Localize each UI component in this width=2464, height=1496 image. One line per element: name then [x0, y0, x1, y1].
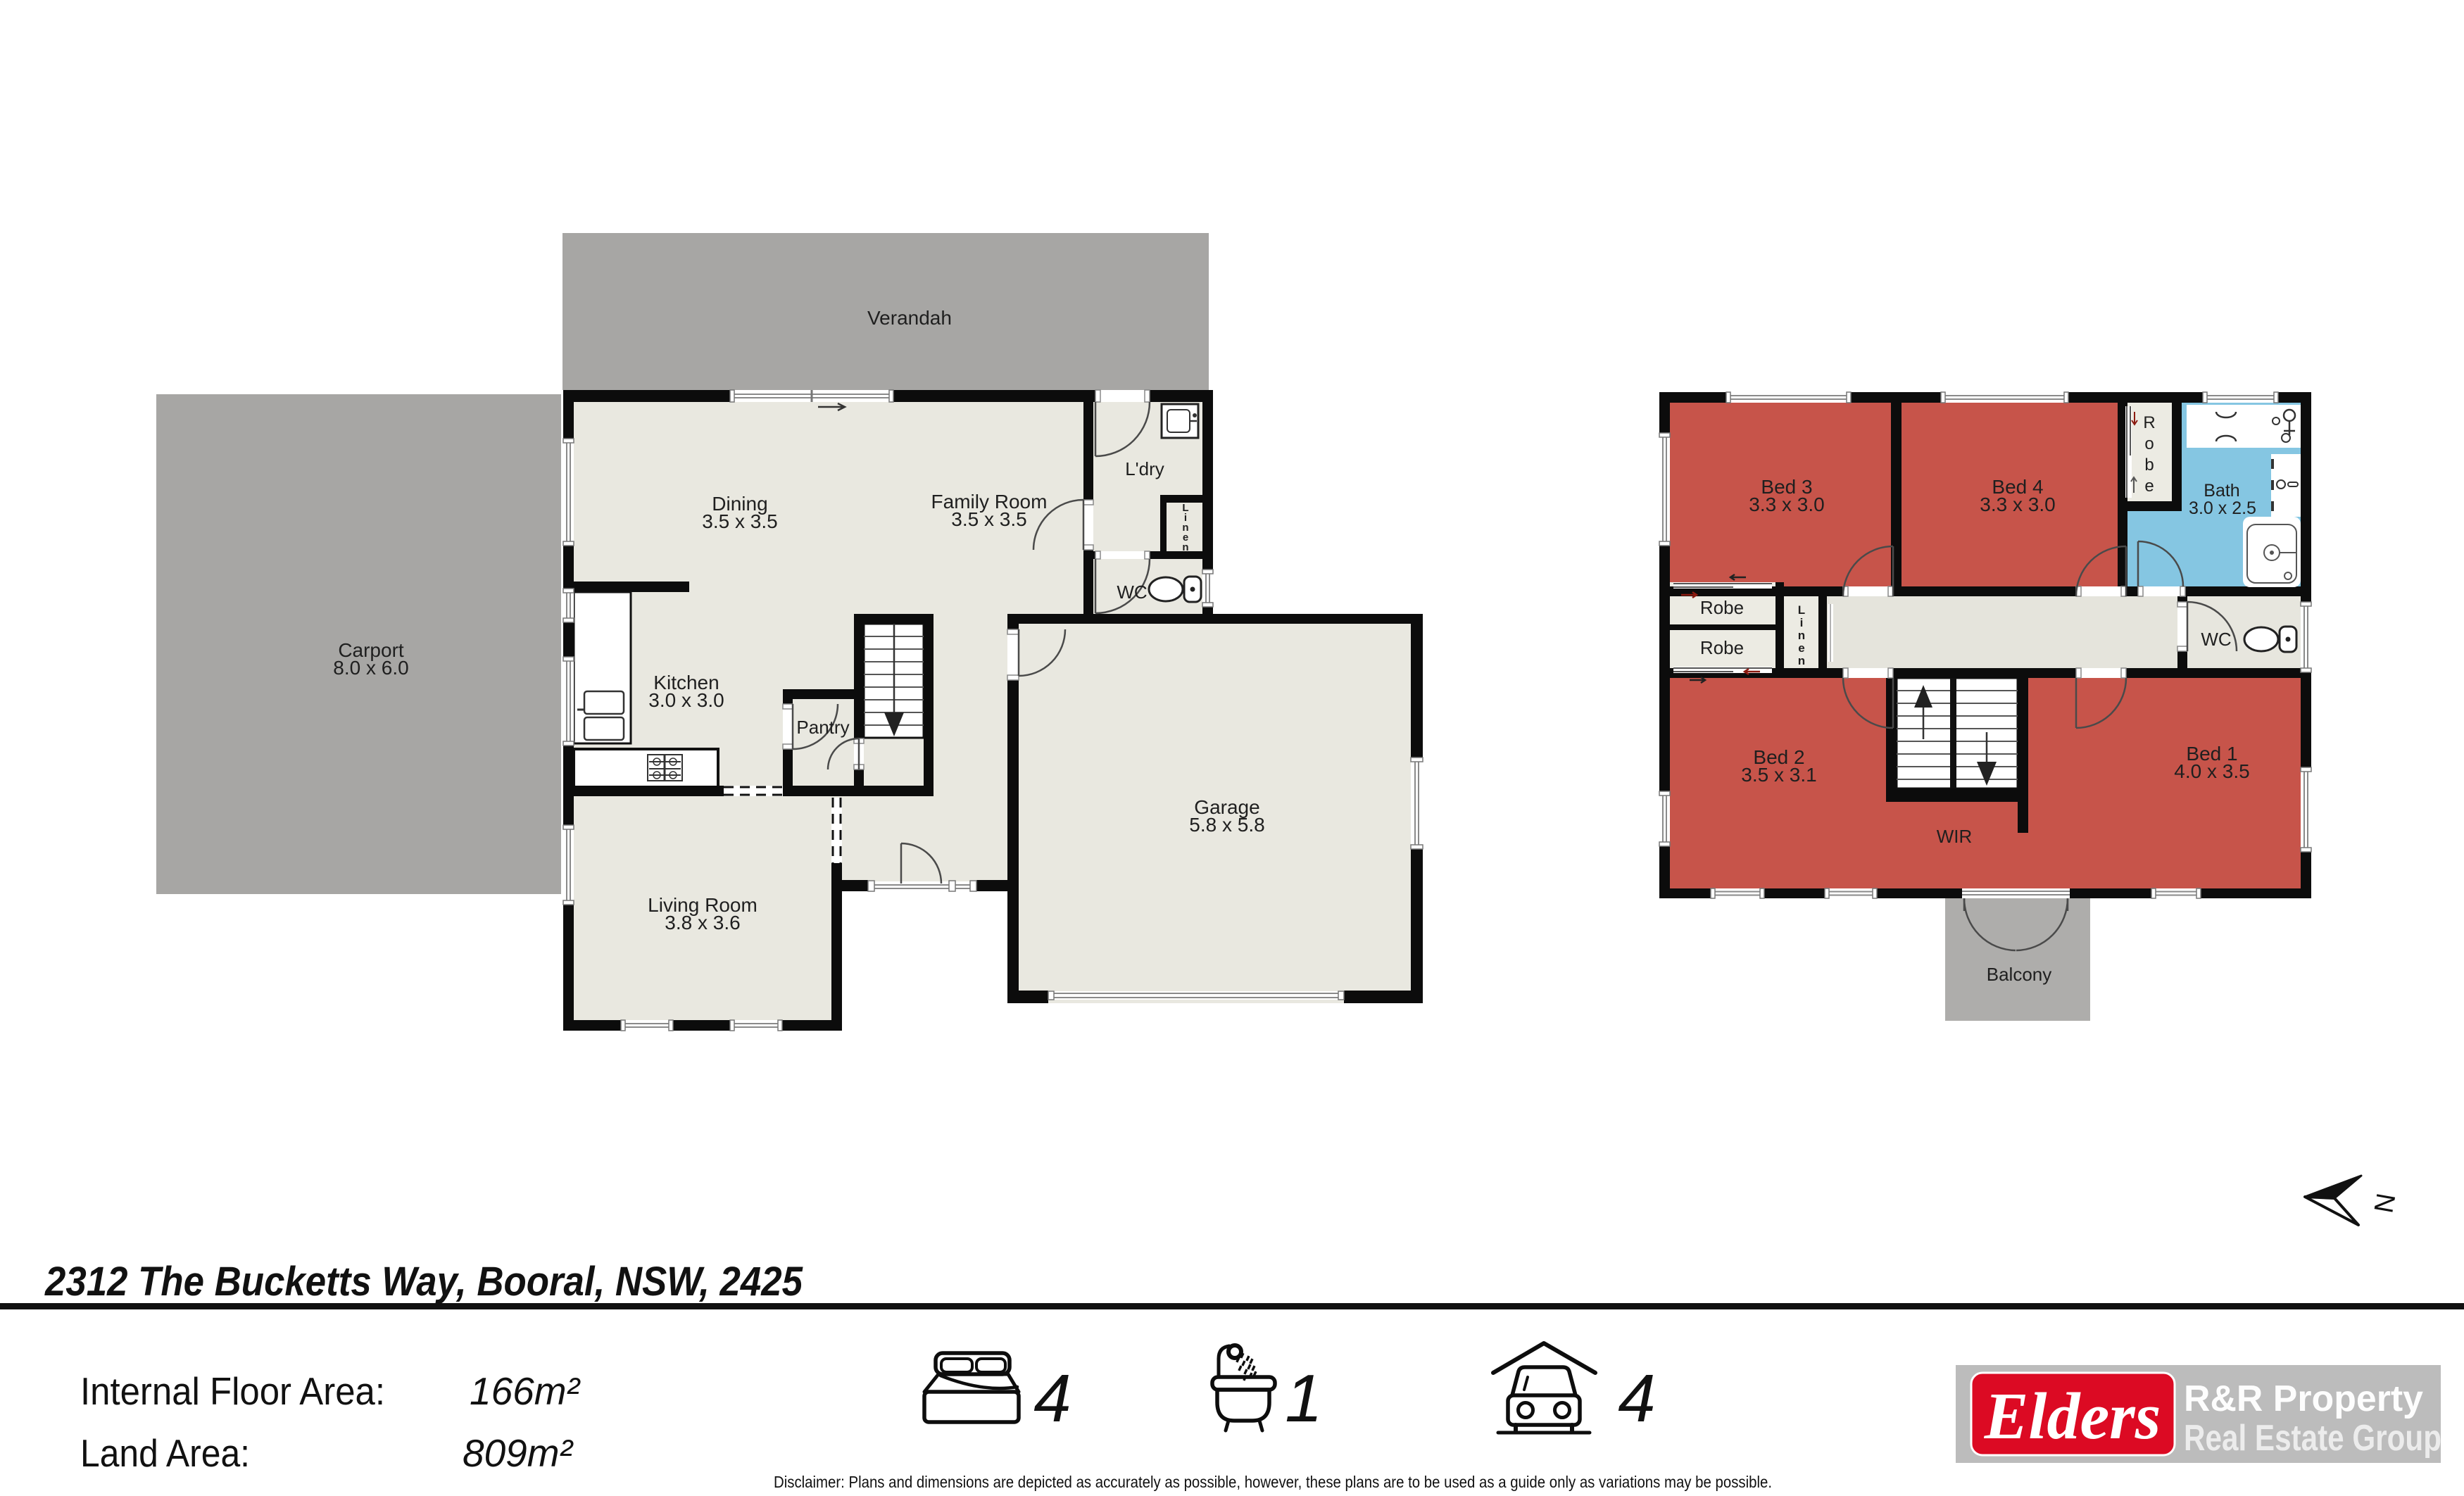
svg-text:Real Estate Group: Real Estate Group: [2184, 1418, 2441, 1459]
svg-text:b: b: [2144, 455, 2154, 474]
svg-text:5.8 x 5.8: 5.8 x 5.8: [1189, 814, 1264, 836]
svg-text:3.8 x 3.6: 3.8 x 3.6: [665, 912, 740, 934]
svg-text:8.0 x 6.0: 8.0 x 6.0: [333, 657, 408, 679]
svg-text:166m²: 166m²: [470, 1369, 581, 1413]
svg-text:3.0 x 3.0: 3.0 x 3.0: [648, 689, 724, 711]
svg-text:Bath: Bath: [2204, 481, 2239, 501]
svg-text:e: e: [1798, 641, 1804, 655]
svg-text:R: R: [2143, 413, 2155, 432]
svg-text:o: o: [2144, 434, 2154, 453]
svg-text:3.0 x 2.5: 3.0 x 2.5: [2189, 498, 2256, 518]
svg-text:3.3 x 3.0: 3.3 x 3.0: [1749, 494, 1824, 515]
svg-text:n: n: [1182, 541, 1188, 553]
svg-text:Elders: Elders: [1984, 1380, 2161, 1453]
svg-text:WC: WC: [2201, 629, 2231, 650]
svg-text:Internal Floor Area:: Internal Floor Area:: [80, 1369, 385, 1413]
svg-text:Robe: Robe: [1700, 637, 1744, 658]
svg-text:4: 4: [1618, 1361, 1655, 1436]
svg-text:3.5 x 3.1: 3.5 x 3.1: [1741, 764, 1816, 786]
svg-text:Disclaimer: Plans and dimensio: Disclaimer: Plans and dimensions are dep…: [774, 1473, 1772, 1491]
svg-text:L'dry: L'dry: [1125, 458, 1164, 479]
svg-text:e: e: [2144, 477, 2154, 496]
svg-text:3.5 x 3.5: 3.5 x 3.5: [951, 508, 1026, 530]
svg-text:i: i: [1800, 616, 1804, 629]
svg-text:3.3 x 3.0: 3.3 x 3.0: [1980, 494, 2055, 515]
svg-text:3.5 x 3.5: 3.5 x 3.5: [702, 510, 777, 532]
svg-text:Land Area:: Land Area:: [80, 1431, 250, 1475]
svg-text:n: n: [1798, 654, 1805, 667]
svg-text:Pantry: Pantry: [796, 717, 849, 738]
svg-text:Robe: Robe: [1700, 597, 1744, 618]
svg-text:809m²: 809m²: [463, 1431, 574, 1475]
svg-text:L: L: [1798, 603, 1805, 617]
svg-text:Verandah: Verandah: [867, 307, 952, 329]
svg-text:n: n: [1798, 629, 1805, 642]
svg-text:WC: WC: [1117, 582, 1147, 603]
svg-text:2312 The Bucketts Way, Booral,: 2312 The Bucketts Way, Booral, NSW, 2425: [44, 1259, 803, 1305]
svg-text:Balcony: Balcony: [1987, 964, 2052, 985]
svg-text:R&R Property: R&R Property: [2184, 1378, 2423, 1419]
svg-text:4: 4: [1033, 1361, 1071, 1436]
svg-text:1: 1: [1285, 1361, 1322, 1436]
svg-text:WIR: WIR: [1937, 826, 1973, 847]
svg-text:4.0 x 3.5: 4.0 x 3.5: [2174, 760, 2249, 782]
